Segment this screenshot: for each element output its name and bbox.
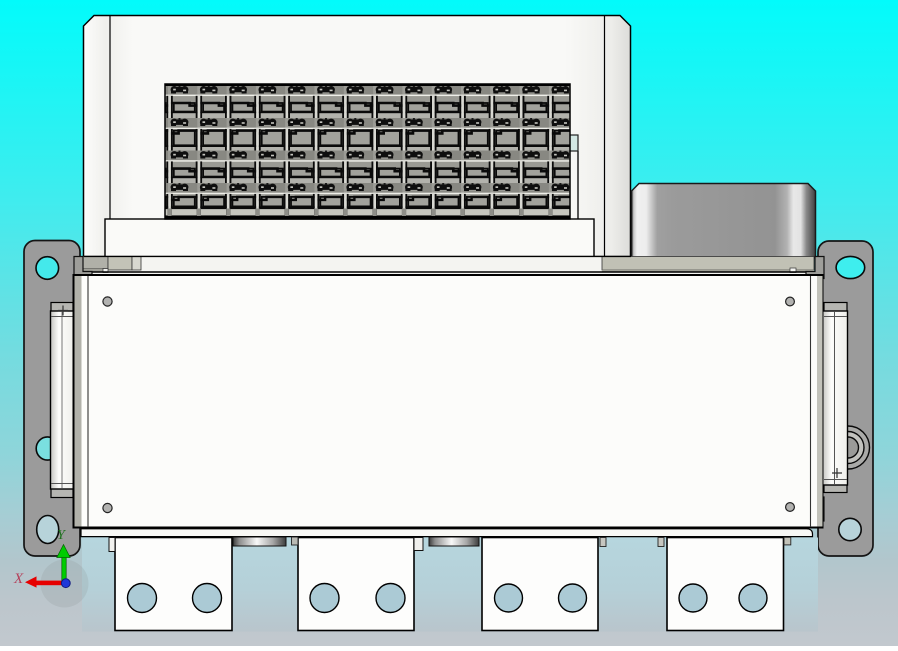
svg-text:X: X <box>13 571 24 587</box>
